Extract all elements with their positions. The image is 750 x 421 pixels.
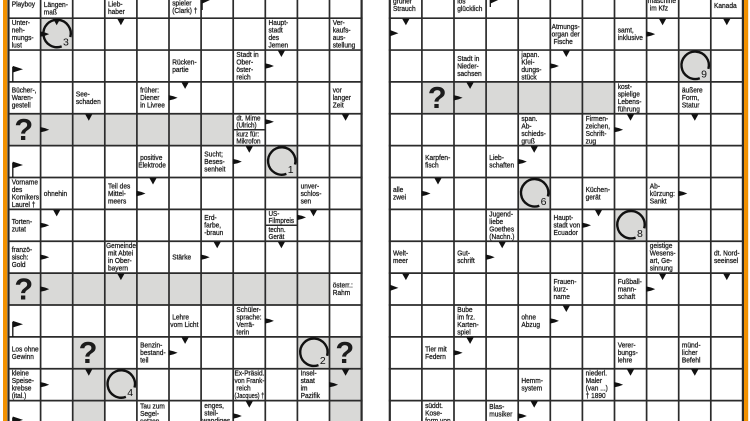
- svg-text:Los ohne: Los ohne: [12, 346, 39, 353]
- svg-text:Pazifik: Pazifik: [301, 393, 321, 400]
- svg-text:Unter-: Unter-: [12, 20, 30, 27]
- svg-text:Maler: Maler: [586, 378, 603, 385]
- svg-text:wandiges: wandiges: [201, 418, 230, 421]
- svg-text:partie: partie: [172, 67, 189, 74]
- svg-text:8: 8: [637, 228, 643, 240]
- svg-text:(Jacques) †: (Jacques) †: [235, 393, 265, 401]
- svg-text:stadt: stadt: [269, 27, 283, 34]
- svg-text:maß: maß: [44, 9, 57, 16]
- svg-text:-braun: -braun: [204, 230, 223, 237]
- svg-text:Federn: Federn: [425, 354, 446, 361]
- svg-text:los: los: [457, 0, 466, 6]
- svg-text:steil-: steil-: [204, 410, 218, 417]
- svg-text:schaden: schaden: [76, 99, 101, 106]
- svg-text:schlos-: schlos-: [301, 191, 322, 198]
- svg-text:reich: reich: [236, 74, 250, 81]
- svg-text:dungs-: dungs-: [521, 67, 541, 74]
- svg-text:Karten-: Karten-: [457, 322, 479, 329]
- svg-text:kurz-: kurz-: [554, 286, 569, 293]
- svg-text:zug: zug: [586, 138, 597, 145]
- svg-text:Komikers: Komikers: [12, 194, 40, 201]
- svg-text:unver-: unver-: [301, 183, 320, 190]
- svg-text:im frz.: im frz.: [457, 314, 475, 321]
- svg-text:Strauch: Strauch: [393, 6, 416, 13]
- svg-text:Mittel-: Mittel-: [108, 191, 126, 198]
- svg-text:liebe: liebe: [489, 219, 503, 226]
- svg-text:samt,: samt,: [618, 27, 634, 34]
- svg-text:Fußball-: Fußball-: [618, 279, 642, 286]
- svg-text:Statur: Statur: [682, 102, 700, 109]
- svg-text:† 1890: † 1890: [586, 393, 606, 400]
- svg-text:6: 6: [541, 196, 547, 208]
- svg-text:Schrift-: Schrift-: [586, 131, 607, 138]
- svg-text:in Ober-: in Ober-: [108, 258, 132, 265]
- svg-text:Gut-: Gut-: [457, 250, 470, 257]
- svg-text:von Frank-: von Frank-: [235, 378, 265, 386]
- svg-text:Laurel †: Laurel †: [12, 202, 36, 209]
- svg-text:(Nachn.): (Nachn.): [489, 234, 514, 241]
- svg-text:Lehre: Lehre: [172, 314, 189, 321]
- svg-text:inklusive: inklusive: [618, 35, 643, 42]
- svg-text:spiel: spiel: [457, 329, 471, 336]
- svg-text:schaft: schaft: [618, 294, 636, 301]
- svg-text:öster-: öster-: [236, 67, 253, 74]
- svg-text:führung: führung: [618, 106, 640, 113]
- svg-text:Haupt-: Haupt-: [269, 20, 289, 27]
- svg-text:seeinsel: seeinsel: [714, 258, 739, 265]
- svg-text:Insel-: Insel-: [301, 370, 317, 377]
- svg-text:lust: lust: [12, 42, 22, 49]
- svg-text:senheit: senheit: [204, 166, 225, 173]
- svg-text:Erd-: Erd-: [204, 215, 216, 222]
- svg-text:positive: positive: [140, 155, 162, 162]
- svg-text:ohnehin: ohnehin: [44, 191, 67, 198]
- svg-text:Küchen-: Küchen-: [586, 187, 610, 194]
- svg-text:alle: alle: [393, 187, 403, 194]
- svg-text:Atmungs-: Atmungs-: [552, 24, 580, 31]
- svg-text:9: 9: [701, 68, 707, 80]
- svg-text:Stadt in: Stadt in: [457, 56, 479, 63]
- svg-text:span.: span.: [521, 116, 537, 123]
- svg-text:Zeit: Zeit: [333, 102, 344, 109]
- svg-text:maschine: maschine: [648, 0, 676, 5]
- svg-text:Verrä-: Verrä-: [236, 322, 254, 329]
- svg-text:Klei-: Klei-: [521, 59, 534, 66]
- svg-text:Jemen: Jemen: [269, 42, 289, 49]
- svg-text:Lebens-: Lebens-: [618, 99, 642, 106]
- svg-text:terin: terin: [236, 329, 249, 336]
- svg-text:Playboy: Playboy: [12, 1, 36, 8]
- svg-text:?: ?: [14, 112, 33, 147]
- svg-text:2: 2: [320, 355, 326, 367]
- svg-text:Lieb-: Lieb-: [108, 1, 123, 8]
- svg-text:Speise-: Speise-: [12, 378, 34, 385]
- svg-text:bestand-: bestand-: [140, 350, 166, 357]
- svg-text:sinnung: sinnung: [650, 265, 673, 272]
- svg-text:Mikrofon: Mikrofon: [236, 138, 260, 145]
- svg-text:des: des: [12, 187, 23, 194]
- svg-text:(ital.): (ital.): [12, 393, 27, 400]
- svg-text:dt. Nord-: dt. Nord-: [714, 250, 740, 257]
- svg-text:gruß: gruß: [521, 138, 534, 145]
- svg-text:name: name: [554, 294, 571, 301]
- svg-text:sachsen: sachsen: [457, 71, 482, 78]
- svg-text:ohne: ohne: [521, 314, 536, 321]
- svg-text:art, Ge-: art, Ge-: [650, 258, 672, 265]
- svg-text:japan.: japan.: [520, 52, 539, 59]
- svg-text:niederl.: niederl.: [586, 370, 608, 377]
- svg-text:des: des: [269, 35, 280, 42]
- svg-text:neh-: neh-: [12, 27, 25, 34]
- svg-text:vor: vor: [333, 87, 343, 94]
- svg-text:Tau zum: Tau zum: [140, 403, 165, 410]
- svg-text:lehre: lehre: [618, 357, 633, 364]
- svg-text:österr.:: österr.:: [333, 282, 353, 289]
- svg-text:Firmen-: Firmen-: [586, 116, 609, 123]
- svg-text:Torten-: Torten-: [12, 219, 32, 226]
- svg-text:Ecuador: Ecuador: [554, 230, 579, 237]
- svg-text:haber: haber: [108, 9, 125, 16]
- svg-text:Längen-: Längen-: [44, 2, 68, 9]
- svg-text:Stärke: Stärke: [172, 254, 191, 261]
- svg-text:3: 3: [63, 37, 69, 49]
- svg-text:Gerät: Gerät: [269, 234, 285, 241]
- svg-text:franzö-: franzö-: [12, 247, 32, 254]
- svg-text:Gemeinde: Gemeinde: [106, 243, 136, 250]
- svg-text:Verer-: Verer-: [618, 342, 636, 349]
- svg-text:kleine: kleine: [12, 370, 29, 377]
- svg-text:Form,: Form,: [682, 95, 699, 102]
- svg-text:Schüler-: Schüler-: [236, 307, 260, 314]
- svg-text:mit Abtei: mit Abtei: [108, 250, 134, 257]
- svg-text:Haupt-: Haupt-: [554, 215, 574, 222]
- svg-text:Benzin-: Benzin-: [140, 342, 162, 349]
- svg-text:(Clark) †: (Clark) †: [172, 8, 197, 15]
- svg-text:fisch: fisch: [425, 162, 439, 169]
- svg-text:Ab-: Ab-: [521, 123, 531, 130]
- svg-text:Blas-: Blas-: [489, 404, 504, 411]
- svg-text:farbe,: farbe,: [204, 222, 221, 229]
- svg-text:münd-: münd-: [682, 342, 701, 349]
- svg-text:Sankt: Sankt: [650, 198, 667, 205]
- svg-text:Befehl: Befehl: [682, 357, 701, 364]
- svg-text:langer: langer: [333, 95, 352, 102]
- svg-text:Ver-: Ver-: [333, 20, 345, 27]
- svg-text:stadt von: stadt von: [554, 222, 581, 229]
- svg-text:bungs-: bungs-: [618, 350, 638, 357]
- svg-text:im Kfz: im Kfz: [650, 5, 669, 12]
- svg-text:Segel-: Segel-: [140, 411, 159, 418]
- svg-text:Hemm-: Hemm-: [521, 378, 543, 385]
- svg-text:gerät: gerät: [586, 194, 601, 201]
- svg-text:schieds-: schieds-: [521, 131, 545, 138]
- svg-text:?: ?: [335, 335, 354, 370]
- svg-text:geistige: geistige: [650, 243, 673, 250]
- svg-text:Abzug: Abzug: [521, 322, 540, 329]
- svg-text:zutat: zutat: [12, 226, 26, 233]
- svg-text:Kanada: Kanada: [714, 3, 737, 10]
- svg-text:Bube: Bube: [457, 307, 472, 314]
- svg-text:spielige: spielige: [618, 91, 640, 98]
- svg-text:Beses-: Beses-: [204, 159, 224, 166]
- svg-text:Diener: Diener: [140, 95, 160, 102]
- svg-text:system: system: [521, 385, 542, 392]
- svg-text:sen: sen: [301, 198, 312, 205]
- svg-text:?: ?: [79, 335, 98, 370]
- svg-text:Nieder-: Nieder-: [457, 63, 479, 70]
- svg-text:in Livree: in Livree: [140, 102, 165, 109]
- svg-text:4: 4: [127, 387, 133, 399]
- svg-text:Kose-: Kose-: [425, 410, 442, 417]
- svg-text:Karpfen-: Karpfen-: [425, 155, 450, 162]
- svg-text:schaften: schaften: [489, 162, 514, 169]
- svg-text:Tier mit: Tier mit: [425, 346, 447, 353]
- svg-text:(van ...): (van ...): [586, 385, 608, 392]
- svg-text:Bücher-,: Bücher-,: [12, 87, 37, 94]
- svg-text:Gold: Gold: [12, 262, 26, 269]
- svg-text:?: ?: [428, 80, 447, 115]
- svg-text:schrift: schrift: [457, 258, 475, 265]
- svg-text:sisch:: sisch:: [12, 254, 29, 261]
- svg-text:Frauen-: Frauen-: [554, 279, 577, 286]
- svg-text:staat: staat: [301, 378, 315, 385]
- svg-text:Waren-: Waren-: [12, 95, 33, 102]
- svg-text:glücklich: glücklich: [457, 6, 482, 13]
- svg-text:zeichen,: zeichen,: [586, 123, 611, 130]
- svg-text:teil: teil: [140, 357, 149, 364]
- svg-text:im: im: [301, 385, 308, 392]
- svg-text:krebse: krebse: [12, 385, 32, 392]
- svg-text:zwei: zwei: [393, 194, 407, 201]
- svg-text:Ex-Präsid.: Ex-Präsid.: [235, 370, 265, 377]
- svg-text:spieler: spieler: [172, 0, 192, 7]
- svg-text:kürzung:: kürzung:: [650, 191, 675, 198]
- svg-text:stellung: stellung: [333, 42, 356, 49]
- svg-text:Elektrode: Elektrode: [138, 162, 166, 169]
- svg-text:Filmpreis: Filmpreis: [269, 218, 295, 225]
- svg-text:aus-: aus-: [333, 35, 346, 42]
- svg-text:Gewinn: Gewinn: [12, 354, 34, 361]
- svg-text:stück: stück: [521, 74, 537, 81]
- svg-text:mann-: mann-: [618, 286, 637, 293]
- svg-text:äußere: äußere: [682, 87, 703, 94]
- svg-text:Welt-: Welt-: [393, 250, 408, 257]
- svg-text:1: 1: [288, 164, 294, 176]
- svg-text:licher: licher: [682, 350, 698, 357]
- svg-text:Jugend-: Jugend-: [489, 211, 513, 218]
- svg-text:sprache:: sprache:: [236, 314, 261, 321]
- svg-text:Stadt in: Stadt in: [236, 52, 258, 59]
- svg-text:meer: meer: [393, 258, 409, 265]
- svg-text:Vorname: Vorname: [12, 179, 38, 186]
- svg-text:kost-: kost-: [618, 84, 632, 91]
- svg-text:organ der: organ der: [552, 31, 581, 38]
- svg-text:musiker: musiker: [489, 411, 513, 418]
- svg-text:enges,: enges,: [204, 403, 224, 410]
- svg-text:grüner: grüner: [393, 0, 413, 6]
- svg-text:Sucht;: Sucht;: [204, 151, 223, 158]
- svg-text:Rücken-: Rücken-: [172, 59, 196, 66]
- svg-text:süddt.: süddt.: [425, 403, 443, 410]
- svg-text:See-: See-: [76, 91, 90, 98]
- svg-text:Wesens-: Wesens-: [650, 250, 676, 257]
- svg-text:?: ?: [14, 271, 33, 306]
- svg-text:Lieb-: Lieb-: [489, 155, 504, 162]
- svg-text:Ober-: Ober-: [236, 59, 253, 66]
- svg-text:mungs-: mungs-: [12, 35, 34, 42]
- svg-text:Goethes: Goethes: [489, 226, 514, 233]
- svg-text:gestell: gestell: [12, 102, 31, 109]
- svg-text:Ab-: Ab-: [650, 183, 660, 190]
- svg-text:Fische: Fische: [554, 39, 573, 46]
- svg-text:(Ulrich): (Ulrich): [236, 122, 256, 129]
- svg-text:bayern: bayern: [108, 265, 128, 272]
- svg-text:früher:: früher:: [140, 87, 159, 94]
- svg-text:vom Licht: vom Licht: [170, 322, 198, 329]
- svg-text:Teil des: Teil des: [108, 183, 131, 190]
- svg-text:Rahm: Rahm: [333, 290, 351, 297]
- svg-text:meers: meers: [108, 198, 127, 205]
- svg-text:kaufs-: kaufs-: [333, 27, 351, 34]
